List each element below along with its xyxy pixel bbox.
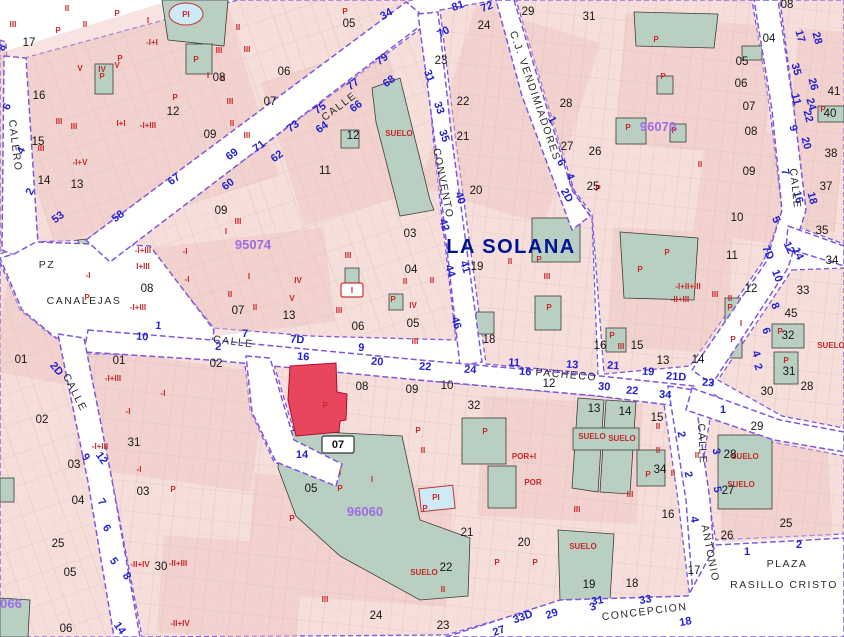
parcel-number[interactable]: 28	[724, 449, 737, 461]
parcel-number[interactable]: 08	[745, 126, 758, 138]
parcel-number[interactable]: 34	[654, 464, 667, 476]
parcel-number[interactable]: 03	[68, 459, 81, 471]
house-number: 34	[659, 389, 673, 402]
construction-label: I	[147, 16, 149, 25]
construction-label: P	[322, 401, 328, 410]
parcel-number[interactable]: 10	[441, 380, 454, 392]
construction-label: P	[415, 426, 421, 435]
construction-label: II	[698, 160, 702, 169]
construction-label: P	[645, 470, 651, 479]
construction-label: P	[172, 93, 178, 102]
town-name-label: LA SOLANA	[446, 236, 575, 258]
construction-label: I	[371, 475, 373, 484]
house-number: 22	[626, 385, 639, 398]
construction-label: II	[671, 469, 675, 478]
parcel-number[interactable]: 38	[825, 148, 838, 160]
parcel-number[interactable]: 32	[468, 400, 481, 412]
parcel-number[interactable]: 09	[743, 166, 756, 178]
construction-label: IV	[409, 301, 417, 310]
construction-label: POR	[524, 478, 542, 487]
house-number: 16	[297, 351, 310, 364]
construction-label: II	[728, 294, 732, 303]
green-parcel[interactable]	[345, 268, 359, 284]
parcel-number[interactable]: 15	[651, 412, 664, 424]
construction-label: II	[83, 20, 87, 29]
street-name-label: CANALEJAS	[47, 295, 122, 307]
parcel-number[interactable]: 07	[232, 305, 245, 317]
construction-label: III	[712, 290, 719, 299]
parcel-number[interactable]: 23	[437, 620, 450, 632]
parcel-number[interactable]: 14	[692, 354, 705, 366]
block-code-label: 066	[0, 596, 22, 611]
parcel-number[interactable]: 04	[405, 264, 418, 276]
house-number: 24	[464, 364, 478, 377]
construction-label: P	[289, 514, 295, 523]
construction-label: P	[342, 7, 348, 16]
house-number: 21D	[666, 370, 687, 383]
construction-label: II	[421, 446, 425, 455]
parcel-number[interactable]: 13	[657, 355, 670, 367]
parcel-number[interactable]: 40	[824, 108, 837, 120]
parcel-number[interactable]: 05	[407, 318, 420, 330]
house-number: 1	[720, 404, 726, 416]
parcel-number[interactable]: 06	[278, 66, 291, 78]
parcel-number[interactable]: 17	[23, 37, 36, 49]
parcel-number[interactable]: 29	[751, 421, 764, 433]
parcel-number[interactable]: 14	[38, 175, 51, 187]
parcel-number[interactable]: 02	[36, 414, 49, 426]
construction-label: V	[77, 64, 83, 73]
construction-label: I	[207, 71, 209, 80]
construction-label: I	[248, 272, 250, 281]
parcel-number[interactable]: 24	[370, 610, 383, 622]
construction-label: P	[653, 35, 659, 44]
green-parcel[interactable]	[718, 435, 772, 509]
block-code-label: 96070	[640, 119, 676, 134]
parcel-number[interactable]: 27	[561, 141, 574, 153]
construction-label: III	[56, 117, 63, 126]
house-number: 9	[358, 342, 365, 354]
construction-label: P	[494, 558, 500, 567]
parcel-number[interactable]: 09	[204, 129, 217, 141]
construction-label: II	[230, 119, 234, 128]
construction-label: I	[339, 468, 341, 477]
green-parcel[interactable]	[535, 296, 561, 330]
construction-label: I+I	[116, 119, 125, 128]
parcel-number[interactable]: 11	[726, 250, 738, 262]
construction-label: II	[656, 446, 660, 455]
construction-label: P	[660, 72, 666, 81]
construction-label: P	[730, 335, 736, 344]
boxed-label[interactable]: I	[351, 286, 353, 295]
parcel-number[interactable]: 19	[583, 579, 596, 591]
block-code-label: 96060	[347, 504, 383, 519]
house-number: 23	[702, 377, 715, 390]
construction-label: II	[430, 276, 434, 285]
construction-label: -I+III	[92, 442, 108, 451]
parcel-number[interactable]: 07	[264, 96, 277, 108]
parcel-number[interactable]: 29	[522, 6, 535, 18]
construction-label: SUELO	[385, 129, 413, 138]
parcel-number[interactable]: 15	[32, 136, 45, 148]
parcel-number[interactable]: 09	[406, 384, 419, 396]
construction-label: III	[336, 306, 343, 315]
construction-label: II	[441, 585, 445, 594]
construction-label: -I	[126, 407, 131, 416]
green-parcel[interactable]	[0, 478, 14, 502]
parcel-number[interactable]: 18	[626, 578, 639, 590]
street-name-label: PLAZA	[767, 558, 808, 570]
parcel-number[interactable]: 26	[721, 530, 734, 542]
construction-label: P	[193, 55, 199, 64]
house-number: 22	[419, 361, 432, 374]
parcel-number[interactable]: 21	[457, 131, 470, 143]
parcel-number[interactable]: 03	[137, 486, 150, 498]
parcel-number[interactable]: 32	[782, 330, 795, 342]
construction-label: III	[244, 45, 251, 54]
cadastral-map-viewport[interactable]: SUELOSUELOSUELOSUELOSUELOSUELOSUELOSUELO…	[0, 0, 844, 637]
construction-label: P	[390, 295, 396, 304]
construction-label: III	[216, 46, 223, 55]
parcel-number[interactable]: 05	[343, 18, 356, 30]
parcel-number[interactable]: 01	[15, 354, 28, 366]
house-number: 10	[136, 331, 149, 344]
parcel-number[interactable]: 15	[631, 340, 644, 352]
parcel-number[interactable]: 26	[589, 146, 602, 158]
parcel-number[interactable]: 31	[583, 11, 596, 23]
construction-label: -I+III	[105, 374, 121, 383]
parcel-number[interactable]: 10	[731, 212, 744, 224]
parcel-number[interactable]: 41	[828, 86, 841, 98]
construction-label: P	[727, 303, 733, 312]
parcel-number[interactable]: 05	[64, 567, 77, 579]
construction-label: -II+IV	[170, 619, 190, 628]
parcel-number[interactable]: 08	[213, 72, 226, 84]
construction-label: P	[609, 331, 615, 340]
construction-label: -II+III	[671, 295, 689, 304]
parcel-number[interactable]: 30	[155, 561, 168, 573]
parcel-number[interactable]: 31	[783, 366, 796, 378]
construction-label: -II+IV	[130, 560, 150, 569]
construction-label: P	[337, 484, 343, 493]
green-parcel[interactable]	[186, 44, 212, 74]
construction-label: -I+III	[130, 303, 146, 312]
construction-label: I+III	[136, 262, 150, 271]
construction-label: IV	[98, 65, 106, 74]
parcel-number[interactable]: 13	[588, 403, 601, 415]
street-name-label: PZ	[39, 259, 55, 271]
construction-label: SUELO	[410, 568, 438, 577]
construction-label: P	[422, 504, 428, 513]
parcel-number[interactable]: 20	[518, 537, 531, 549]
green-parcel[interactable]	[634, 12, 718, 48]
construction-label: P	[625, 123, 631, 132]
parcel-number[interactable]: 12	[167, 106, 180, 118]
selected-parcel-label[interactable]: 07	[332, 439, 344, 451]
construction-label: III	[71, 122, 78, 131]
construction-label: I	[740, 319, 742, 328]
construction-label: P	[532, 558, 538, 567]
construction-label: P	[170, 485, 176, 494]
construction-label: III	[235, 217, 242, 226]
parcel-number[interactable]: 13	[283, 310, 296, 322]
construction-label: PI	[182, 10, 190, 19]
construction-label: -I	[183, 247, 188, 256]
parcel-number[interactable]: 08	[356, 381, 369, 393]
construction-label: P	[664, 248, 670, 257]
parcel-number[interactable]: 05	[305, 483, 318, 495]
parcel-number[interactable]: 18	[483, 334, 496, 346]
street-name-label: RASILLO CRISTO	[730, 579, 838, 591]
parcel-number[interactable]: 28	[801, 381, 814, 393]
parcel-number[interactable]: 08	[141, 283, 154, 295]
parcel-number[interactable]: 14	[619, 406, 632, 418]
construction-label: IV	[294, 276, 302, 285]
house-number: 7D	[290, 334, 305, 347]
construction-label: P	[482, 427, 488, 436]
parcel-number[interactable]: 25	[780, 518, 793, 530]
parcel-number[interactable]: 24	[478, 20, 491, 32]
green-parcel[interactable]	[488, 466, 516, 508]
parcel-number[interactable]: 13	[71, 179, 84, 191]
construction-label: -I+I	[146, 38, 158, 47]
parcel-number[interactable]: 16	[594, 340, 607, 352]
parcel-number[interactable]: 22	[457, 96, 470, 108]
construction-label: SUELO	[569, 542, 597, 551]
parcel-number[interactable]: 31	[128, 437, 141, 449]
construction-label: II	[508, 257, 512, 266]
house-number: 19	[642, 366, 655, 379]
construction-label: II	[228, 290, 232, 299]
house-number: 1	[744, 546, 750, 558]
construction-label: II	[236, 23, 240, 32]
construction-label: P	[55, 26, 61, 35]
construction-label: -I	[185, 275, 190, 284]
construction-label: -I+III	[140, 121, 156, 130]
parcel-number[interactable]: 07	[743, 101, 756, 113]
construction-label: II	[253, 303, 257, 312]
parcel-number[interactable]: 20	[470, 185, 483, 197]
construction-label: -I+III	[135, 246, 151, 255]
construction-label: -II+III	[169, 559, 187, 568]
parcel-number[interactable]: 25	[52, 538, 65, 550]
construction-label: III	[627, 490, 634, 499]
parcel-number[interactable]: 12	[745, 283, 758, 295]
construction-label: II	[403, 277, 407, 286]
construction-label: SUELO	[608, 434, 636, 443]
construction-label: -I	[86, 271, 91, 280]
parcel-number[interactable]: 30	[761, 386, 774, 398]
house-number: 16	[519, 366, 532, 379]
parcel-number[interactable]: 21	[461, 527, 474, 539]
construction-label: SUELO	[578, 432, 606, 441]
construction-label: III	[574, 505, 581, 514]
construction-label: III	[227, 97, 234, 106]
construction-label: -I+II+III	[675, 282, 700, 291]
house-number: 18	[678, 615, 692, 629]
parcel-number[interactable]: 23	[435, 55, 448, 67]
house-number: 14	[296, 449, 309, 461]
house-number: 20	[371, 356, 384, 369]
construction-label: II	[65, 4, 69, 13]
parcel-number[interactable]: 45	[785, 308, 798, 320]
parcel-number[interactable]: 22	[440, 562, 453, 574]
parcel-number[interactable]: 19	[471, 261, 484, 273]
construction-label: III	[322, 595, 329, 604]
construction-label: -I	[137, 465, 142, 474]
construction-label: SUELO	[817, 341, 844, 350]
construction-label: P	[783, 356, 789, 365]
construction-label: III	[345, 251, 352, 260]
parcel-number[interactable]: 16	[662, 509, 675, 521]
block-code-label: 95074	[235, 237, 272, 252]
construction-label: P	[546, 303, 552, 312]
green-parcel[interactable]	[476, 312, 494, 334]
parcel-number[interactable]: 02	[210, 358, 223, 370]
construction-label: I	[225, 227, 227, 236]
house-number: 1	[155, 320, 162, 332]
parcel-number[interactable]: 06	[735, 78, 748, 90]
construction-label: -I+V	[73, 158, 89, 167]
parcel-number[interactable]: 33	[797, 285, 810, 297]
construction-label: V	[114, 61, 120, 70]
parcel-number[interactable]: 09	[215, 205, 228, 217]
cadastral-map[interactable]: SUELOSUELOSUELOSUELOSUELOSUELOSUELOSUELO…	[0, 0, 844, 637]
parcel-number[interactable]: 12	[347, 130, 360, 142]
construction-label: P	[637, 265, 643, 274]
construction-label: III	[544, 272, 551, 281]
construction-label: III	[10, 20, 17, 29]
parcel-number[interactable]: 11	[319, 165, 331, 177]
parcel-number[interactable]: 01	[113, 355, 126, 367]
parcel-number[interactable]: 04	[72, 495, 85, 507]
parcel-number[interactable]: 35	[816, 225, 829, 237]
construction-label: III	[618, 342, 625, 351]
construction-label: III	[244, 131, 251, 140]
parcel-number[interactable]: 37	[820, 181, 833, 193]
construction-label: POR+I	[512, 452, 536, 461]
parcel-number[interactable]: 28	[560, 98, 573, 110]
parcel-number[interactable]: 06	[60, 623, 73, 635]
house-number: 30	[598, 381, 611, 394]
street-name-label: CALLE	[695, 423, 709, 464]
parcel-number[interactable]: 05	[736, 56, 749, 68]
parcel-number[interactable]: 17	[688, 565, 701, 577]
parcel-number[interactable]: 25	[587, 181, 600, 193]
green-parcel[interactable]	[462, 418, 506, 464]
parcel-number[interactable]: 16	[33, 90, 46, 102]
construction-label: III	[412, 337, 419, 346]
parcel-number[interactable]: 03	[404, 228, 417, 240]
parcel-number[interactable]: 04	[763, 33, 776, 45]
construction-label: P	[114, 9, 120, 18]
construction-label: V	[289, 294, 295, 303]
parcel-number[interactable]: 34	[826, 255, 839, 267]
parcel-number[interactable]: 06	[352, 321, 365, 333]
construction-label: -I	[161, 389, 166, 398]
house-number: 21	[607, 360, 620, 373]
house-number: 2	[796, 539, 802, 551]
construction-label: PI	[432, 493, 440, 502]
parcel-number[interactable]: 08	[781, 0, 794, 11]
